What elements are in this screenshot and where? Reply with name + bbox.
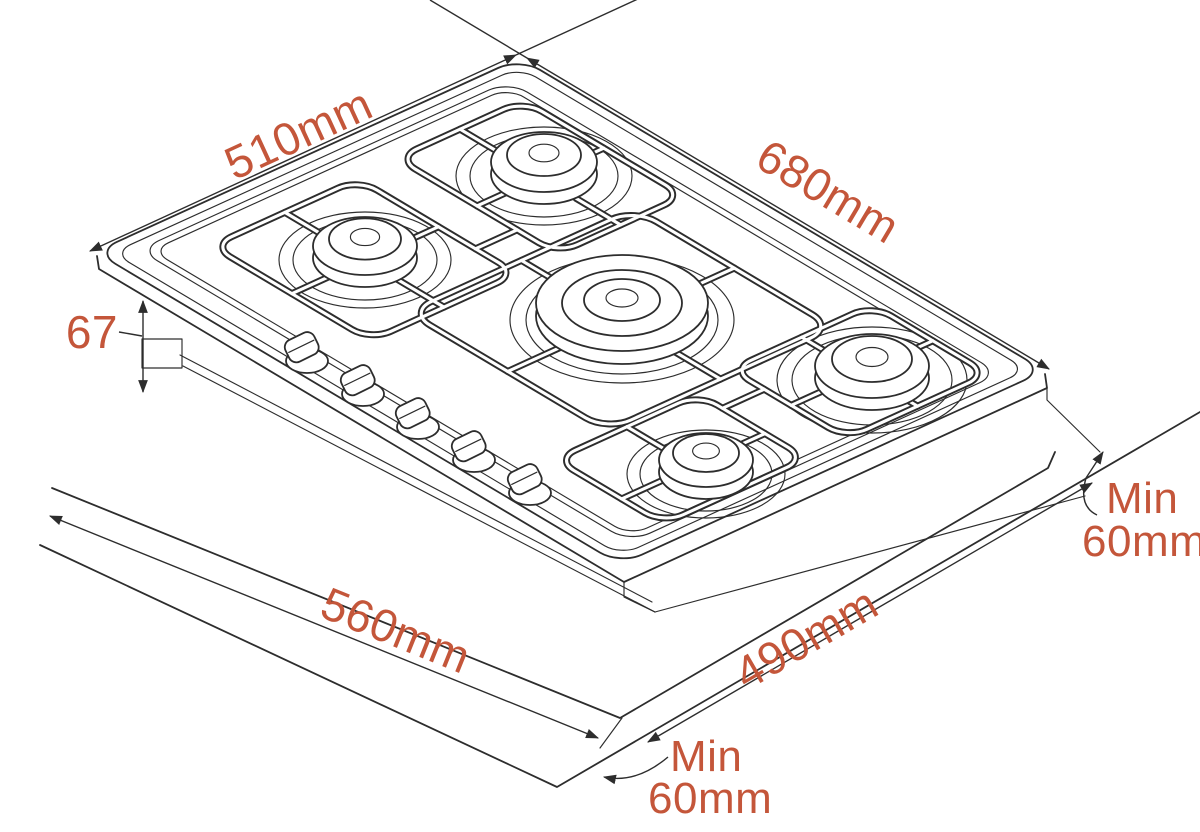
burner-front-left: [313, 217, 417, 287]
technical-drawing-page: 510mm 680mm 67 560mm 490mm Min 60mm Min …: [0, 0, 1200, 832]
dim-leader-67: [119, 332, 142, 336]
burner-front: [659, 433, 753, 499]
hob-dimension-drawing: 510mm 680mm 67 560mm 490mm Min 60mm Min …: [0, 0, 1200, 832]
burner-wok-center: [536, 255, 708, 364]
hob-right-corner-extension: [1047, 388, 1100, 452]
dim-leader-clearance-right: [1084, 452, 1103, 515]
burner-right: [815, 334, 929, 410]
hob-left-corner-chassis: [142, 339, 182, 368]
dim-label-67: 67: [66, 306, 118, 358]
clearance-right-label-line2: 60mm: [1082, 517, 1200, 566]
clearance-bottom-label-line2: 60mm: [648, 774, 772, 823]
cutout-corner-extension-line: [600, 718, 622, 748]
burner-back-left: [491, 132, 597, 204]
clearance-right-label-line1: Min: [1106, 474, 1178, 523]
dim-label-560: 560mm: [314, 577, 478, 684]
dim-extension-510: [516, 0, 640, 55]
dim-label-490: 490mm: [725, 577, 886, 700]
dim-extension-680: [430, 0, 527, 58]
